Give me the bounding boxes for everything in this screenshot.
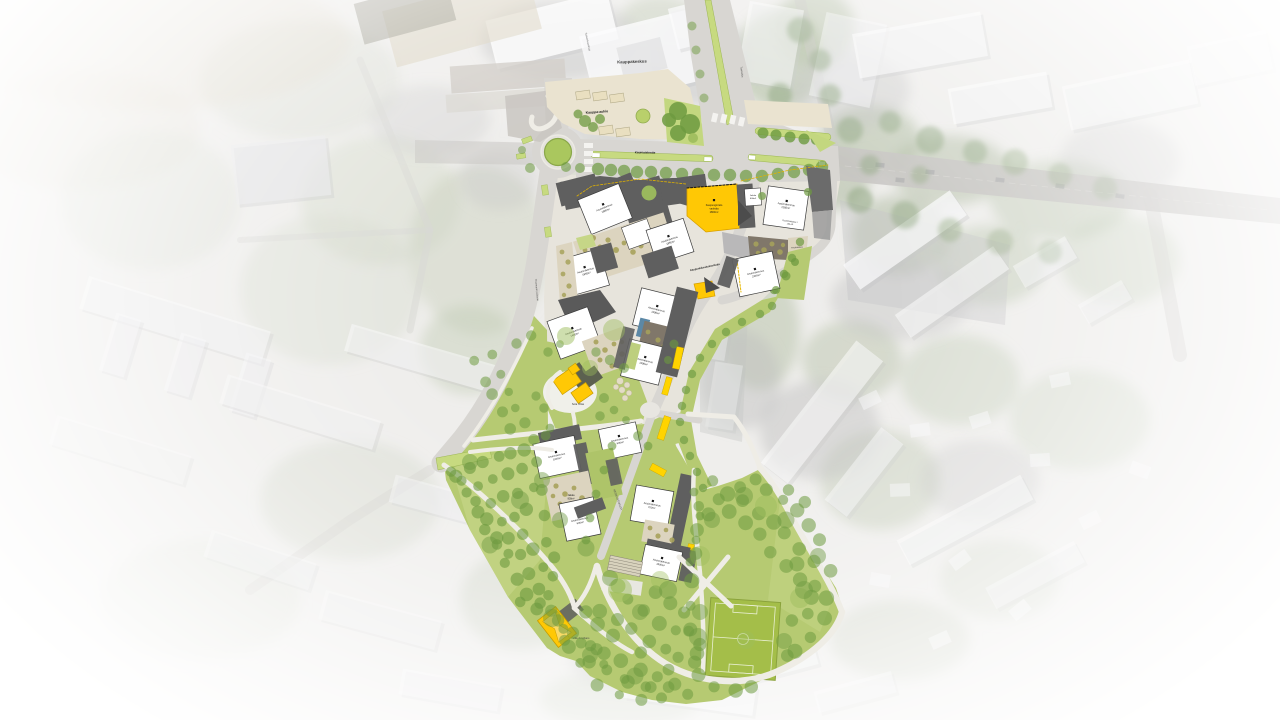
svg-text:Kaupungintalo: Kaupungintalo: [706, 203, 723, 207]
svg-text:1800m²: 1800m²: [710, 210, 719, 214]
svg-text:Kauppakeskus: Kauppakeskus: [617, 58, 647, 64]
svg-text:Jakala: Jakala: [750, 195, 757, 197]
svg-text:800m²: 800m²: [568, 497, 575, 500]
svg-text:600m²: 600m²: [750, 197, 756, 200]
svg-text:Kauniaistentie: Kauniaistentie: [635, 150, 656, 154]
svg-text:Sota Villas: Sota Villas: [572, 402, 585, 406]
svg-text:vanhala: vanhala: [709, 206, 719, 210]
